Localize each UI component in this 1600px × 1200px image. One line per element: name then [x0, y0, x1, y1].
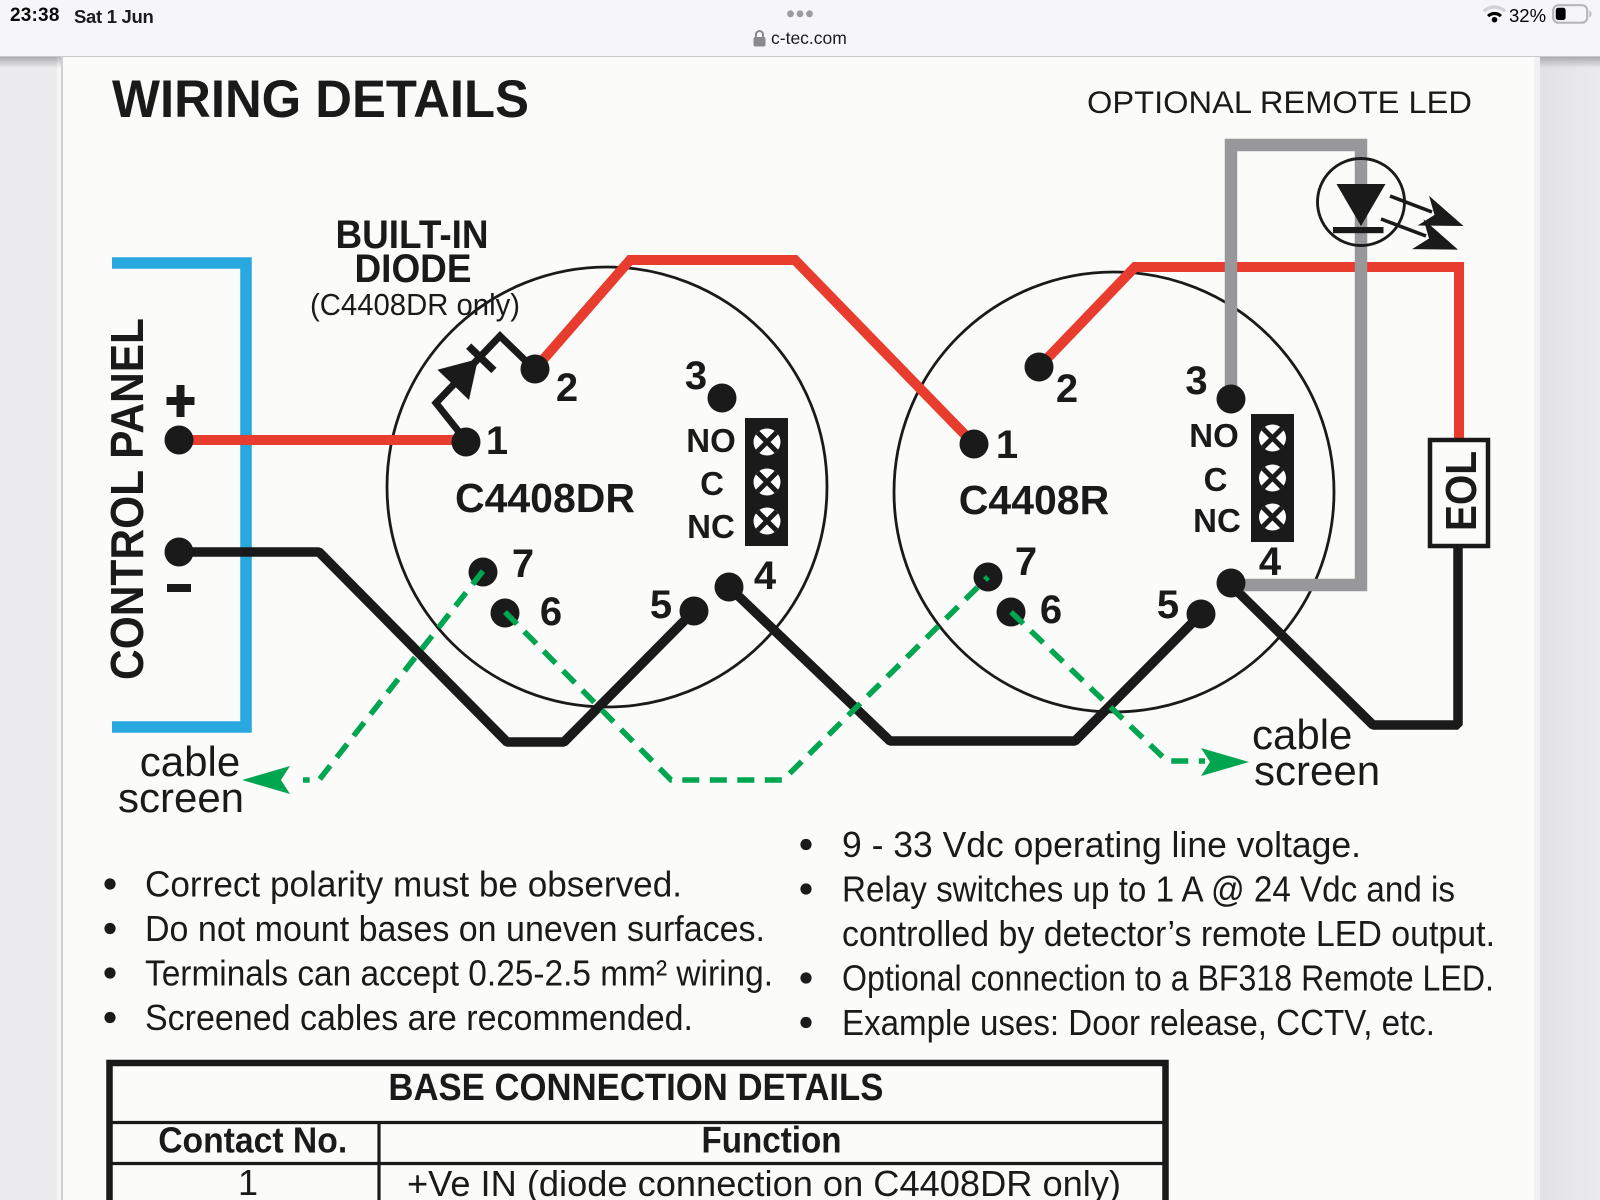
svg-text:7: 7	[512, 542, 534, 586]
svg-text:NC: NC	[687, 508, 735, 545]
svg-text:5: 5	[650, 583, 672, 627]
svg-text:2: 2	[1056, 367, 1078, 411]
svg-text:5: 5	[1157, 583, 1179, 627]
svg-text:+Ve IN (diode connection on C4: +Ve IN (diode connection on C4408DR only…	[407, 1163, 1121, 1200]
svg-text:Function: Function	[702, 1120, 842, 1161]
svg-text:DIODE: DIODE	[355, 247, 472, 291]
svg-text:Terminals can accept 0.25-2.5: Terminals can accept 0.25-2.5 mm² wiring…	[145, 953, 773, 994]
svg-text:7: 7	[1015, 540, 1037, 584]
svg-text:controlled by detector’s remot: controlled by detector’s remote LED outp…	[842, 913, 1495, 954]
svg-text:6: 6	[540, 590, 562, 634]
svg-text:4: 4	[1259, 540, 1282, 584]
svg-text:OPTIONAL REMOTE LED: OPTIONAL REMOTE LED	[1087, 84, 1472, 120]
svg-text:BASE CONNECTION DETAILS: BASE CONNECTION DETAILS	[388, 1067, 883, 1109]
svg-text:9 - 33 Vdc operating line volt: 9 - 33 Vdc operating line voltage.	[842, 824, 1361, 865]
svg-text:3: 3	[685, 354, 707, 398]
svg-text:2: 2	[556, 366, 578, 410]
svg-text:1: 1	[996, 423, 1018, 467]
svg-text:Screened cables are recommende: Screened cables are recommended.	[145, 997, 693, 1038]
svg-text:screen: screen	[1254, 747, 1380, 794]
svg-text:6: 6	[1040, 588, 1062, 632]
svg-text:WIRING DETAILS: WIRING DETAILS	[112, 70, 529, 129]
svg-text:Contact No.: Contact No.	[158, 1120, 347, 1161]
svg-text:(C4408DR only): (C4408DR only)	[310, 287, 520, 322]
svg-text:NC: NC	[1193, 502, 1241, 539]
svg-text:C4408R: C4408R	[959, 477, 1109, 523]
svg-text:C4408DR: C4408DR	[455, 475, 635, 521]
svg-text:Example uses: Door release, CC: Example uses: Door release, CCTV, etc.	[842, 1002, 1435, 1043]
svg-text:CONTROL PANEL: CONTROL PANEL	[101, 318, 153, 680]
svg-text:C: C	[1204, 461, 1228, 498]
svg-text:1: 1	[238, 1162, 258, 1200]
svg-text:Optional connection to a BF318: Optional connection to a BF318 Remote LE…	[842, 958, 1494, 999]
svg-text:C: C	[700, 465, 724, 502]
svg-text:Relay switches up to 1 A @ 24: Relay switches up to 1 A @ 24 Vdc and is	[842, 869, 1455, 910]
svg-text:NO: NO	[1189, 417, 1239, 454]
svg-text:NO: NO	[686, 422, 736, 459]
svg-text:3: 3	[1185, 359, 1207, 403]
svg-text:screen: screen	[118, 774, 244, 821]
svg-text:1: 1	[486, 419, 508, 463]
svg-text:4: 4	[754, 554, 777, 598]
svg-text:Do not mount bases on uneven s: Do not mount bases on uneven surfaces.	[145, 908, 765, 949]
svg-text:EOL: EOL	[1437, 451, 1486, 531]
svg-text:Correct polarity must be obser: Correct polarity must be observed.	[145, 864, 682, 905]
